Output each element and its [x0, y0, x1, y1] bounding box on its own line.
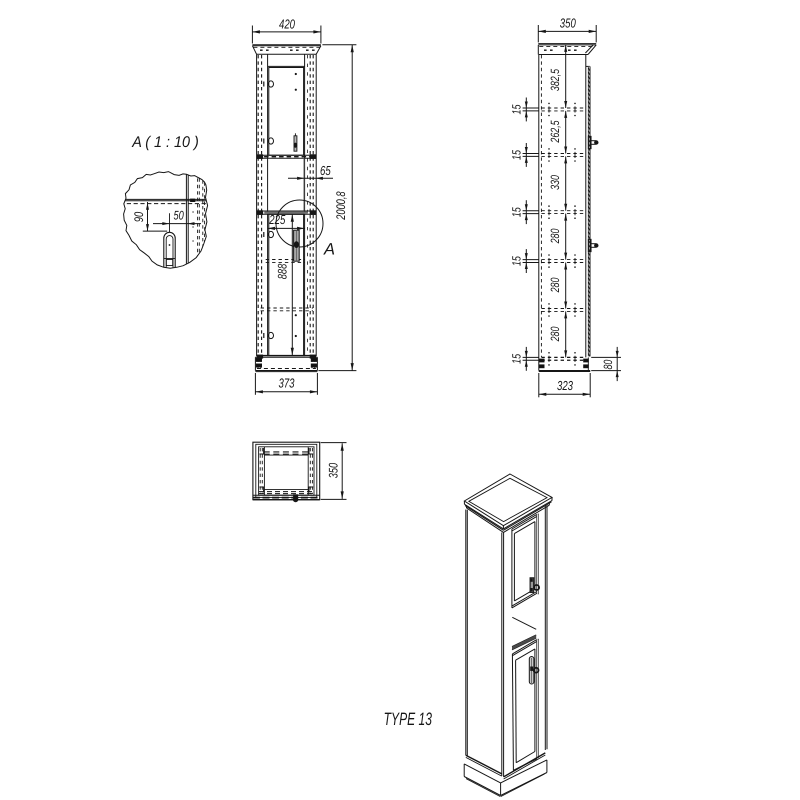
- svg-text:65: 65: [320, 163, 331, 178]
- svg-text:262,5: 262,5: [548, 120, 562, 143]
- svg-text:A ( 1 : 10 ): A ( 1 : 10 ): [131, 134, 199, 151]
- svg-text:280: 280: [548, 277, 562, 293]
- svg-text:330: 330: [548, 175, 562, 190]
- svg-text:280: 280: [548, 326, 562, 342]
- svg-text:A: A: [323, 241, 335, 259]
- svg-text:15: 15: [509, 256, 523, 266]
- svg-text:90: 90: [132, 212, 146, 222]
- svg-text:323: 323: [557, 378, 574, 393]
- svg-text:TYPE 13: TYPE 13: [384, 709, 432, 729]
- svg-text:15: 15: [509, 150, 523, 160]
- svg-text:50: 50: [173, 209, 183, 223]
- svg-text:225: 225: [269, 212, 286, 227]
- svg-text:15: 15: [509, 207, 523, 217]
- svg-text:382,5: 382,5: [548, 69, 562, 91]
- svg-text:280: 280: [548, 228, 562, 244]
- svg-text:350: 350: [560, 16, 577, 31]
- svg-text:888: 888: [276, 264, 290, 279]
- svg-text:350: 350: [326, 463, 340, 478]
- svg-text:420: 420: [279, 16, 296, 31]
- svg-text:373: 373: [279, 376, 296, 391]
- svg-text:15: 15: [509, 354, 523, 364]
- svg-text:2000,8: 2000,8: [334, 191, 348, 220]
- svg-text:80: 80: [601, 359, 615, 369]
- svg-text:15: 15: [509, 104, 523, 114]
